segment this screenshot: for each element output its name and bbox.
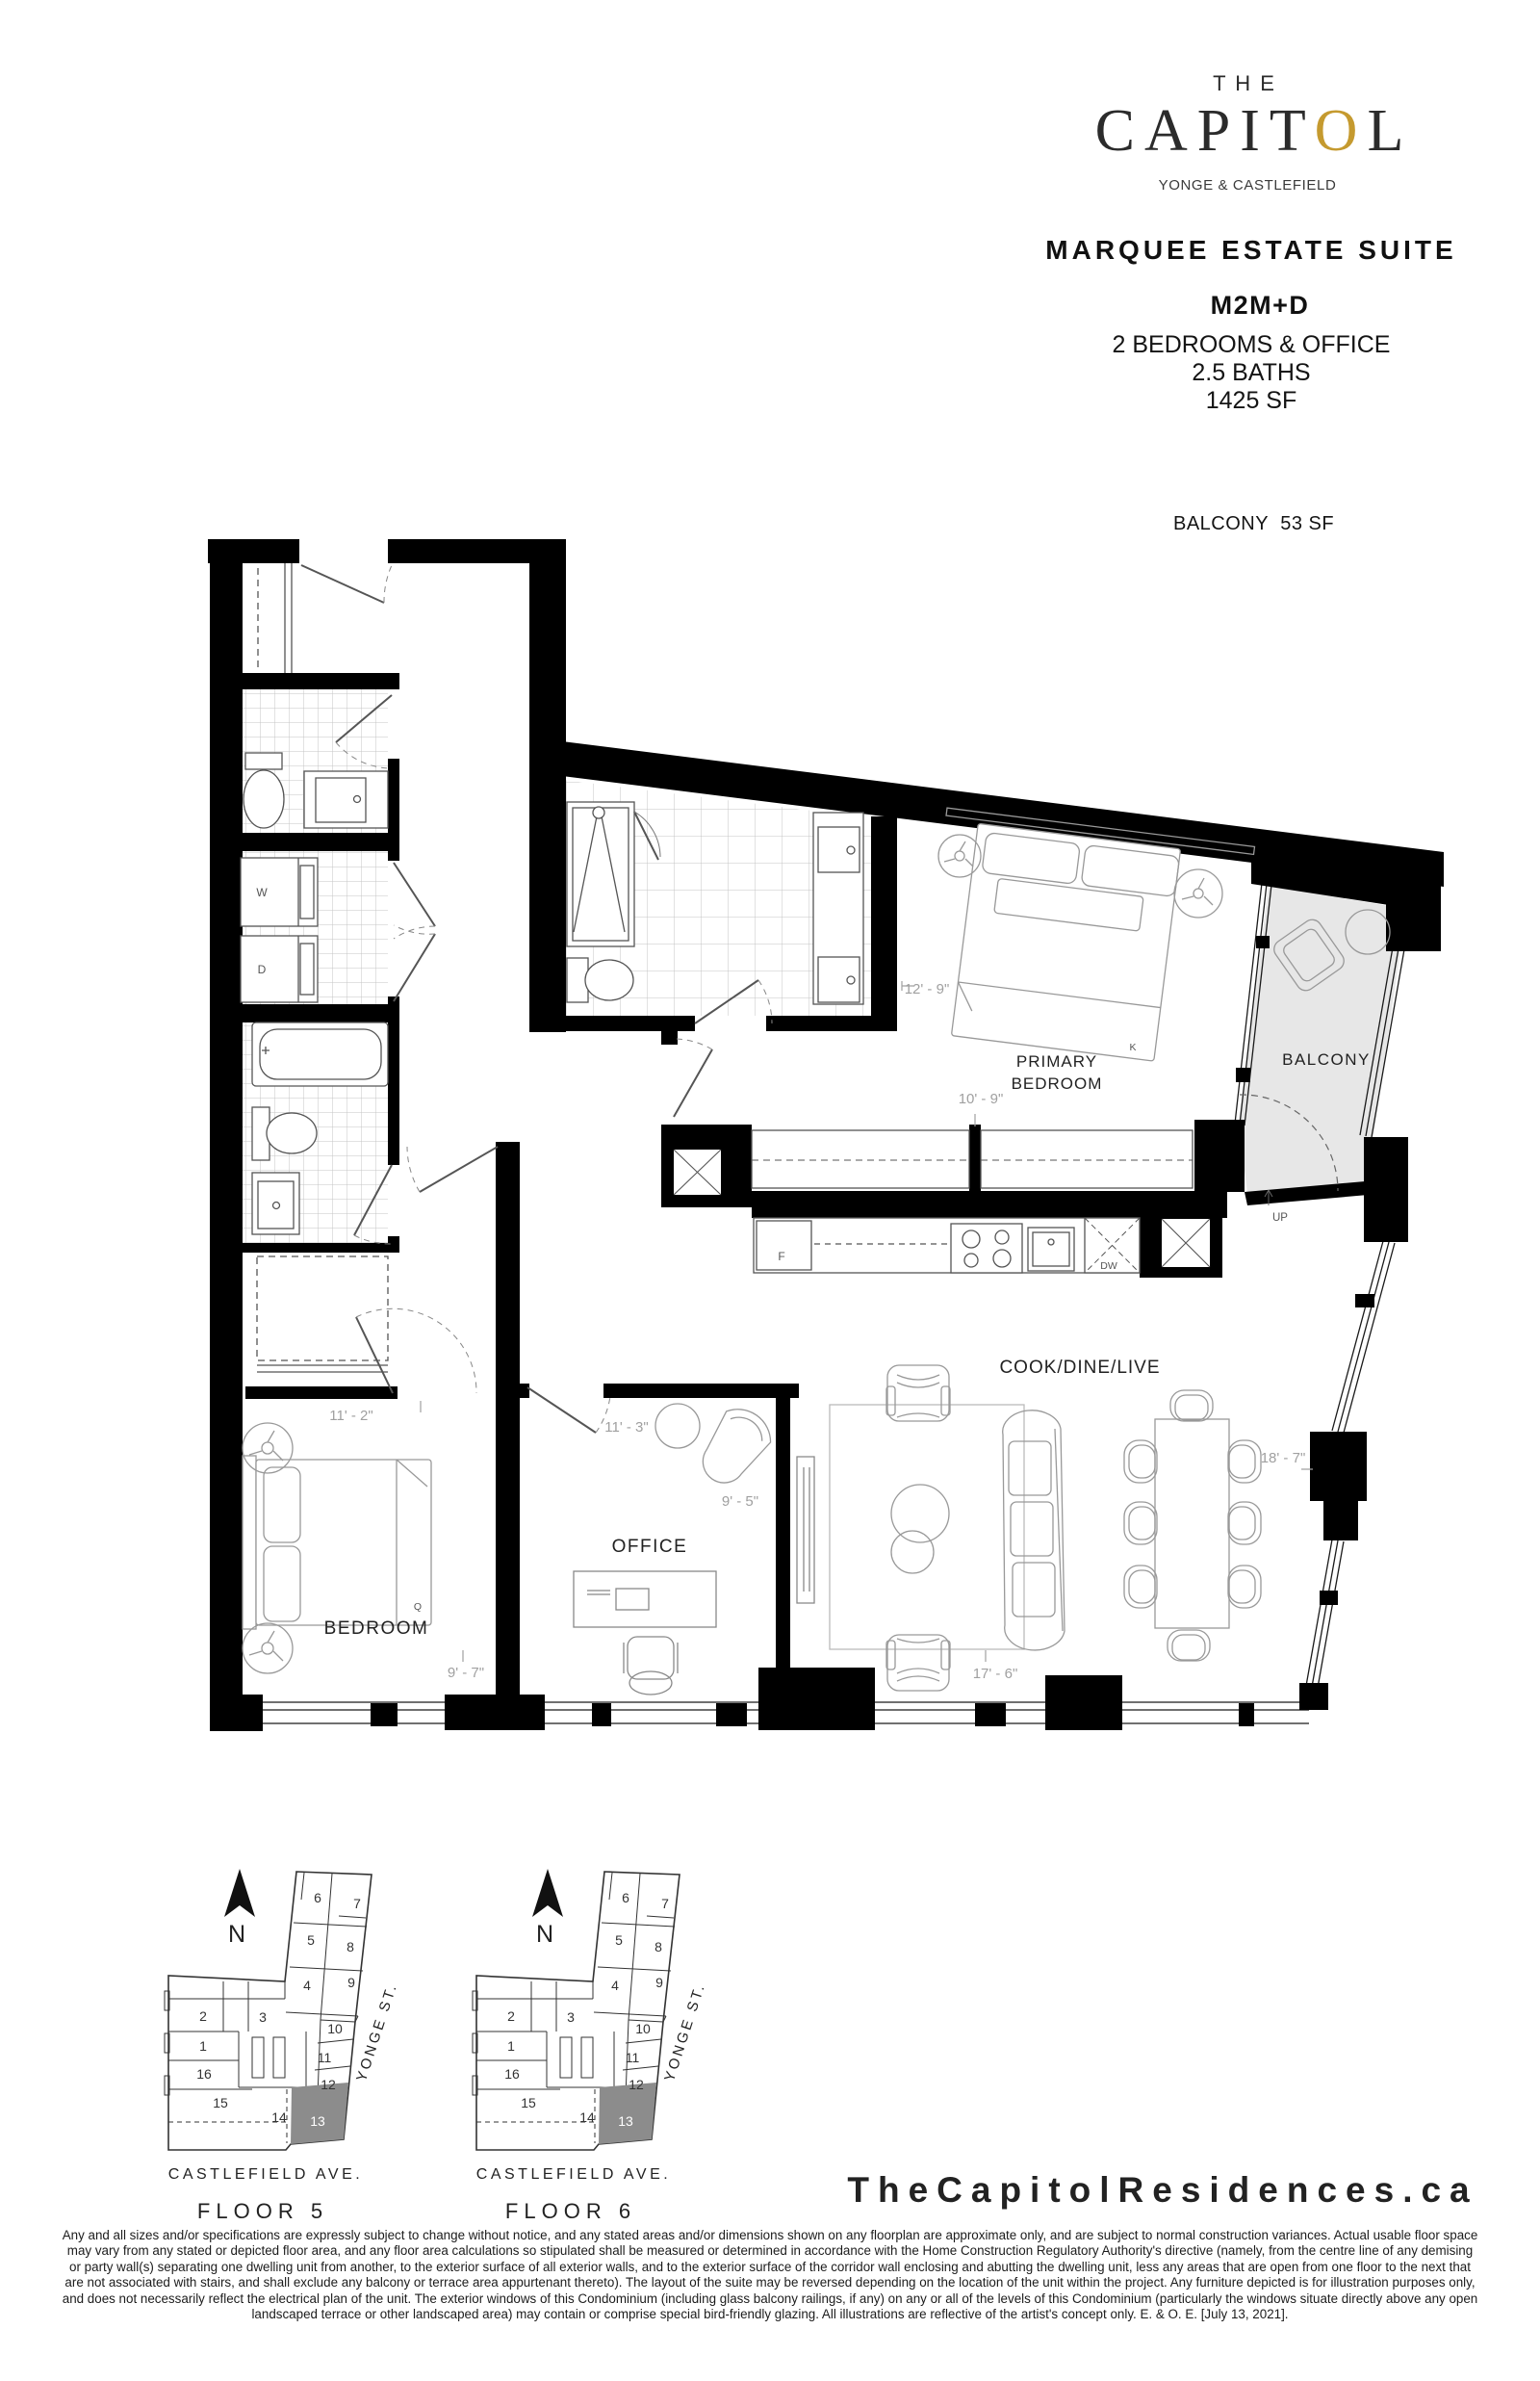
svg-text:5: 5 [307, 1932, 315, 1948]
svg-text:F: F [778, 1250, 784, 1263]
svg-text:10: 10 [327, 2021, 343, 2036]
svg-text:BEDROOM: BEDROOM [1012, 1074, 1103, 1093]
svg-text:CASTLEFIELD AVE.: CASTLEFIELD AVE. [168, 2166, 363, 2183]
svg-text:3: 3 [259, 2009, 267, 2025]
svg-text:COOK/DINE/LIVE: COOK/DINE/LIVE [999, 1358, 1160, 1378]
svg-text:11: 11 [318, 2050, 332, 2065]
svg-text:10' - 9": 10' - 9" [959, 1091, 1004, 1107]
svg-text:6: 6 [314, 1890, 321, 1905]
svg-text:11' - 3": 11' - 3" [604, 1419, 648, 1436]
svg-text:12: 12 [321, 2077, 336, 2092]
svg-text:FLOOR 5: FLOOR 5 [197, 2199, 328, 2223]
svg-text:14: 14 [271, 2109, 287, 2125]
svg-text:PRIMARY: PRIMARY [1016, 1052, 1097, 1071]
svg-text:BALCONY: BALCONY [1282, 1050, 1371, 1069]
svg-text:FLOOR 6: FLOOR 6 [505, 2199, 636, 2223]
svg-text:9' - 5": 9' - 5" [722, 1493, 758, 1510]
svg-text:K: K [1129, 1042, 1136, 1053]
svg-text:W: W [256, 886, 268, 899]
svg-text:15: 15 [213, 2095, 228, 2110]
svg-text:9: 9 [347, 1975, 355, 1990]
svg-text:17' - 6": 17' - 6" [973, 1666, 1018, 1682]
svg-text:11' - 2": 11' - 2" [329, 1408, 372, 1424]
svg-text:OFFICE: OFFICE [612, 1537, 688, 1557]
svg-text:DW: DW [1100, 1260, 1117, 1272]
svg-text:8: 8 [346, 1939, 354, 1954]
svg-text:13: 13 [310, 2113, 325, 2129]
svg-text:4: 4 [303, 1978, 311, 1993]
svg-text:N: N [228, 1921, 245, 1948]
svg-text:9' - 7": 9' - 7" [448, 1665, 484, 1681]
svg-text:1: 1 [199, 2038, 207, 2054]
svg-text:BEDROOM: BEDROOM [324, 1618, 429, 1639]
svg-text:D: D [258, 963, 267, 976]
svg-text:18' - 7": 18' - 7" [1261, 1450, 1306, 1466]
svg-text:YONGE ST.: YONGE ST. [353, 1980, 400, 2083]
svg-text:2: 2 [199, 2008, 207, 2024]
svg-text:7: 7 [353, 1896, 361, 1911]
svg-text:Q: Q [414, 1601, 422, 1613]
svg-text:16: 16 [196, 2066, 212, 2082]
svg-text:12' - 9": 12' - 9" [905, 981, 950, 997]
svg-text:UP: UP [1272, 1212, 1288, 1224]
